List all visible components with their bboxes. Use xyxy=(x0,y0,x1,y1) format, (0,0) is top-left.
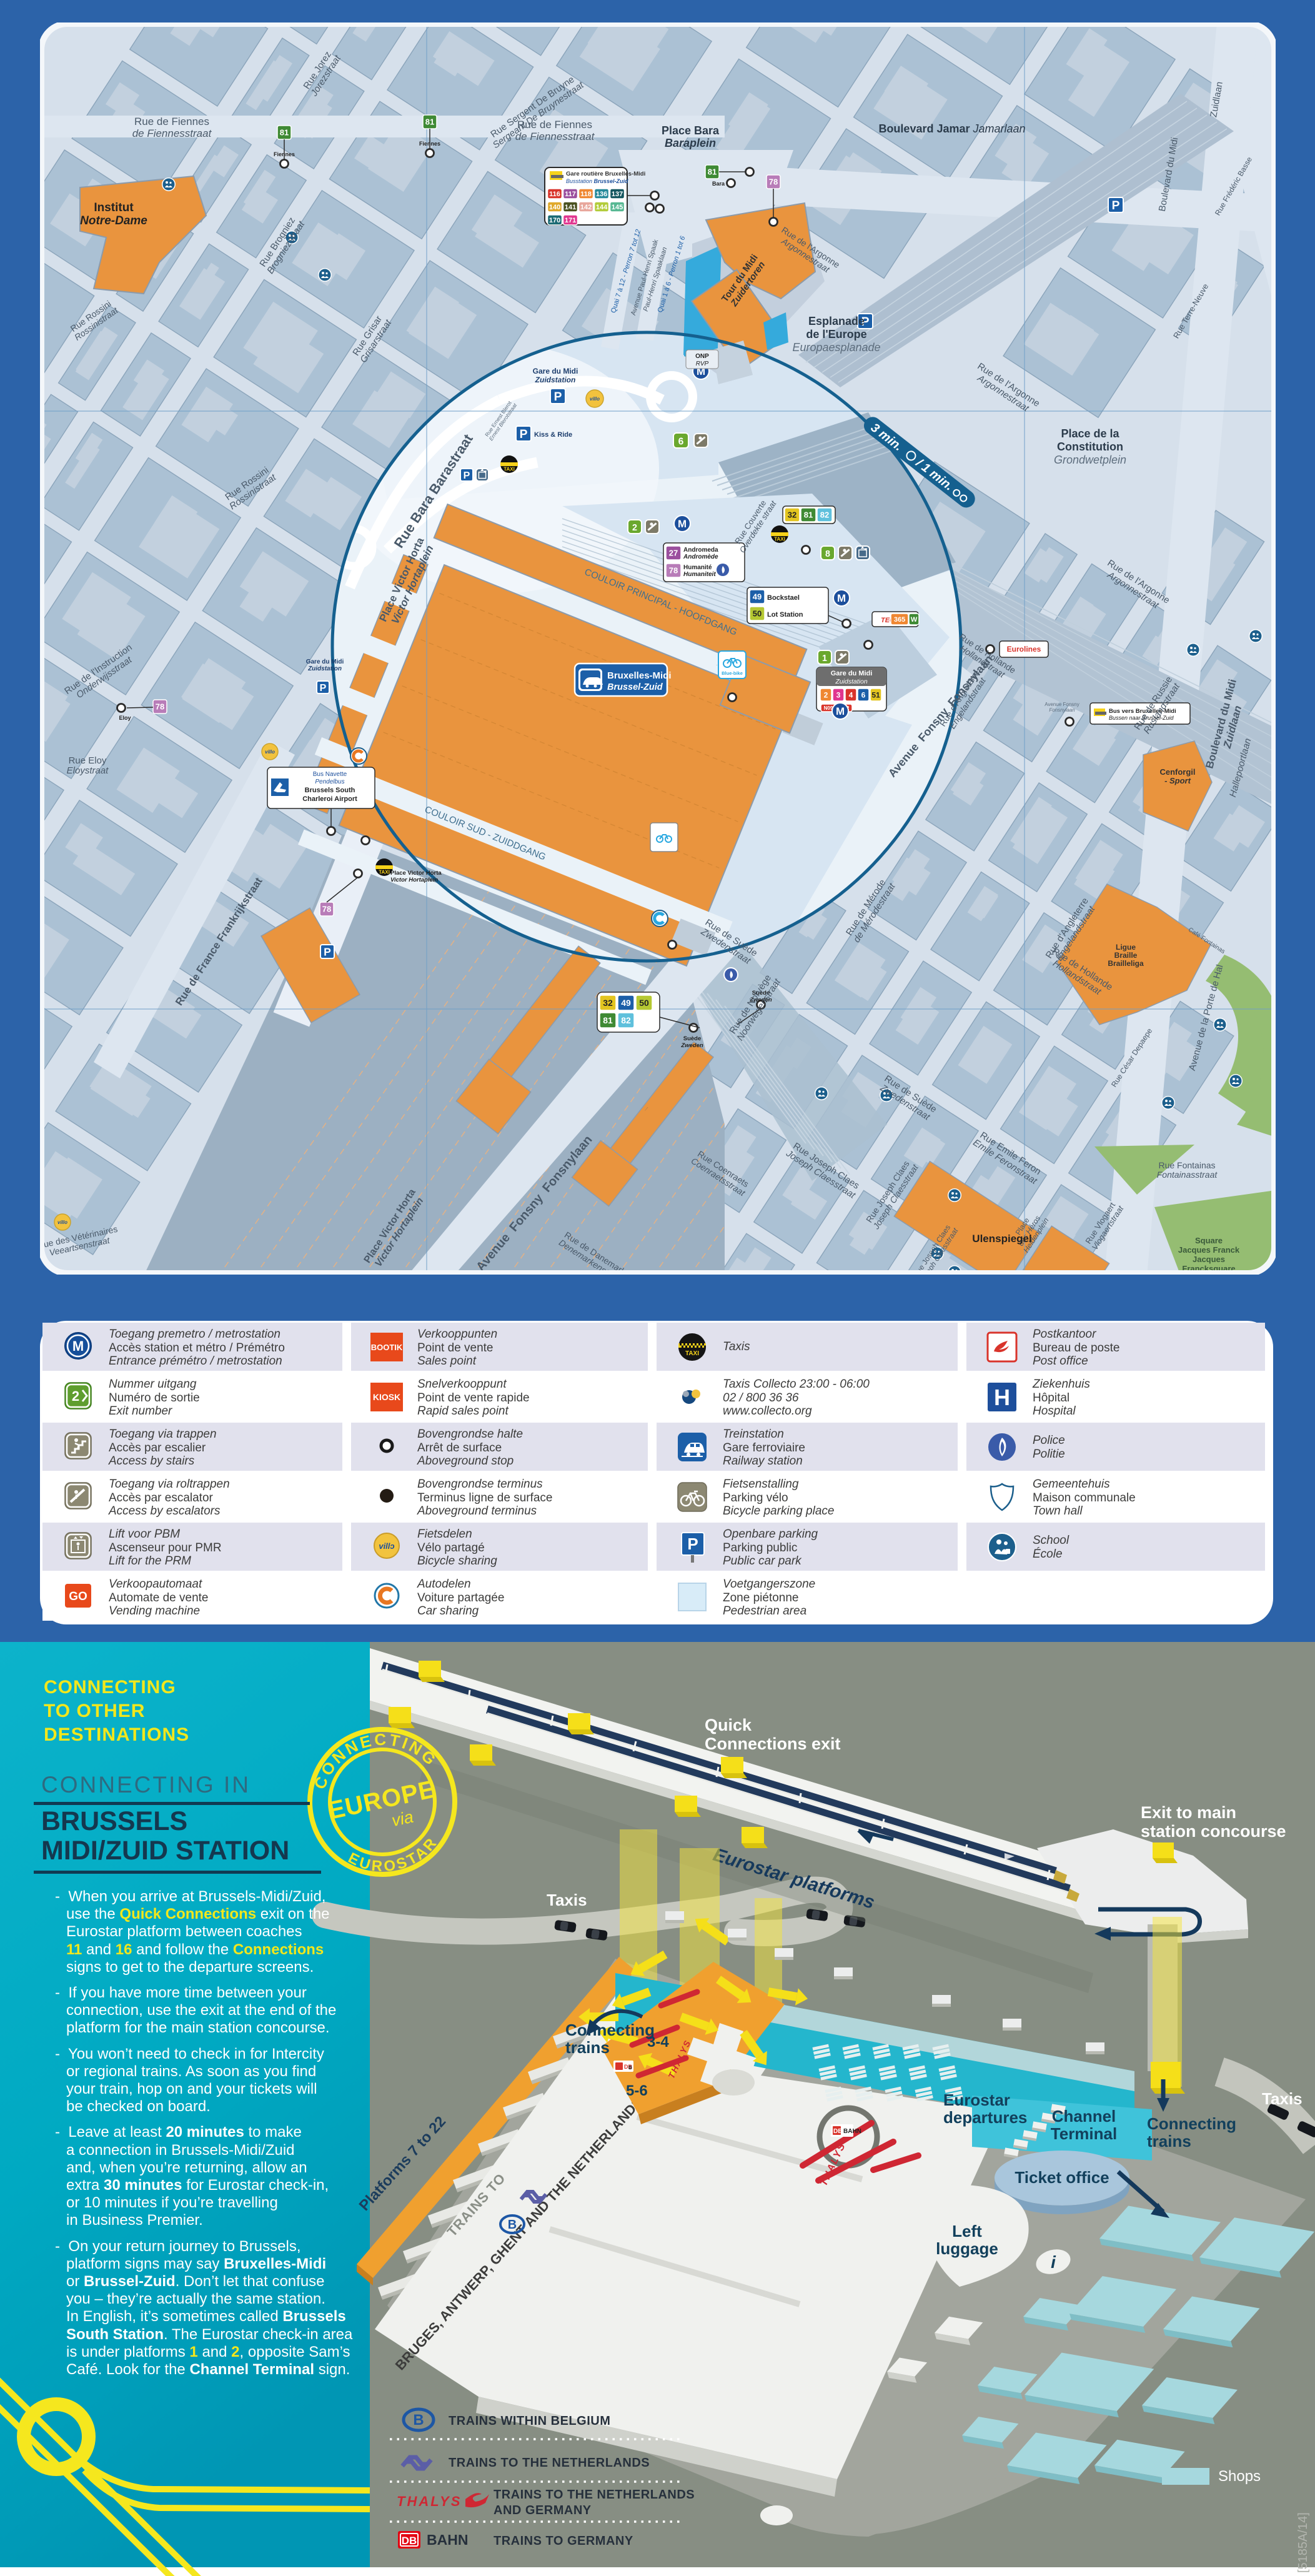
svg-text:Rue EloyEloystraat: Rue EloyEloystraat xyxy=(67,755,109,776)
svg-text:4: 4 xyxy=(849,690,853,699)
svg-text:trains: trains xyxy=(1147,2132,1191,2151)
svg-text:i: i xyxy=(1051,2252,1056,2272)
svg-text:Place Victor HortaVictor Horta: Place Victor HortaVictor Hortaplein xyxy=(390,870,442,883)
svg-text:Brussel-Zuid: Brussel-Zuid xyxy=(607,682,663,692)
svg-text:Left: Left xyxy=(952,2222,982,2240)
svg-text:Taxis: Taxis xyxy=(1262,2089,1303,2108)
svg-text:81: 81 xyxy=(425,117,434,127)
svg-text:KIOSK: KIOSK xyxy=(373,1392,400,1402)
svg-text:82: 82 xyxy=(820,510,829,520)
svg-text:B: B xyxy=(628,2065,632,2071)
svg-text:27: 27 xyxy=(669,549,678,558)
svg-text:Gare routière Bruxelles-Midi: Gare routière Bruxelles-Midi xyxy=(566,171,645,177)
svg-text:Gare du MidiZuidstation: Gare du MidiZuidstation xyxy=(306,659,344,672)
svg-text:137: 137 xyxy=(612,191,623,198)
svg-text:78: 78 xyxy=(156,702,164,712)
svg-text:SuèdeZweden: SuèdeZweden xyxy=(680,1035,703,1049)
svg-text:M: M xyxy=(678,518,687,530)
svg-text:50: 50 xyxy=(639,998,649,1008)
svg-text:117: 117 xyxy=(565,191,576,198)
svg-text:Eloy: Eloy xyxy=(119,715,131,721)
svg-text:81: 81 xyxy=(603,1015,613,1025)
svg-text:station concourse: station concourse xyxy=(1141,1822,1286,1841)
svg-text:H: H xyxy=(994,1385,1010,1410)
svg-text:Europaesplanade: Europaesplanade xyxy=(792,341,880,354)
svg-text:78: 78 xyxy=(769,177,778,187)
svg-text:villɔ: villɔ xyxy=(379,1541,394,1551)
svg-text:DB: DB xyxy=(402,2535,417,2547)
svg-text:118: 118 xyxy=(580,191,592,198)
svg-text:171: 171 xyxy=(565,217,576,224)
svg-text:Avenue FonsnyFonsnylaan: Avenue FonsnyFonsnylaan xyxy=(1045,702,1079,713)
svg-text:81: 81 xyxy=(804,510,813,520)
svg-text:Gare du MidiZuidstation: Gare du MidiZuidstation xyxy=(533,367,578,384)
svg-text:B: B xyxy=(413,2412,424,2429)
svg-text:3: 3 xyxy=(836,690,841,699)
svg-text:Blue-bike: Blue-bike xyxy=(722,670,743,676)
svg-text:TAXI: TAXI xyxy=(685,1350,699,1357)
svg-text:Ticket office: Ticket office xyxy=(1015,2168,1109,2187)
svg-text:Rue FontainasFontainasstraat: Rue FontainasFontainasstraat xyxy=(1157,1160,1218,1180)
svg-text:32: 32 xyxy=(788,510,796,520)
svg-text:5-6: 5-6 xyxy=(626,2082,648,2099)
svg-text:W: W xyxy=(911,616,918,624)
svg-text:365: 365 xyxy=(894,616,905,624)
svg-text:M: M xyxy=(836,705,845,717)
svg-text:[5185A/14]: [5185A/14] xyxy=(1296,2512,1310,2573)
svg-text:51: 51 xyxy=(871,690,880,699)
svg-text:Place BaraBaraplein: Place BaraBaraplein xyxy=(662,124,720,149)
svg-text:AndromedaAndromède: AndromedaAndromède xyxy=(683,547,718,560)
svg-text:Cenforgil- Sport: Cenforgil- Sport xyxy=(1159,767,1195,785)
svg-text:GO: GO xyxy=(69,1590,87,1603)
svg-text:Boulevard Jamar Jamarlaan: Boulevard Jamar Jamarlaan xyxy=(878,122,1025,135)
svg-text:BOOTIK: BOOTIK xyxy=(371,1343,403,1352)
svg-text:HumanitéHumaniteit: HumanitéHumaniteit xyxy=(683,564,716,578)
svg-text:Quick: Quick xyxy=(705,1716,752,1734)
svg-text:142: 142 xyxy=(580,204,592,211)
svg-text:2: 2 xyxy=(824,690,828,699)
svg-text:2: 2 xyxy=(632,523,637,533)
svg-text:Zuidstation: Zuidstation xyxy=(835,678,868,685)
svg-text:6: 6 xyxy=(678,436,684,447)
svg-text:116: 116 xyxy=(549,191,560,198)
svg-text:Connecting: Connecting xyxy=(565,2021,655,2039)
svg-text:Gare du Midi: Gare du Midi xyxy=(831,670,873,677)
svg-text:Taxis: Taxis xyxy=(547,1891,587,1909)
svg-text:luggage: luggage xyxy=(936,2239,998,2258)
svg-text:TRAINS TO THE NETHERLANDS: TRAINS TO THE NETHERLANDS xyxy=(494,2488,695,2502)
svg-text:ONP: ONP xyxy=(695,353,709,360)
svg-text:Channel: Channel xyxy=(1052,2107,1116,2126)
svg-text:Lot Station: Lot Station xyxy=(767,611,803,619)
svg-text:RVP: RVP xyxy=(696,361,709,367)
svg-text:6: 6 xyxy=(861,690,866,699)
svg-text:B: B xyxy=(508,2218,517,2232)
svg-text:TAXI: TAXI xyxy=(504,467,515,472)
svg-text:trains: trains xyxy=(565,2038,610,2057)
svg-text:Connections exit: Connections exit xyxy=(705,1734,841,1753)
svg-text:Grondwetplein: Grondwetplein xyxy=(1054,454,1126,466)
svg-text:M: M xyxy=(837,592,846,604)
svg-text:82: 82 xyxy=(621,1015,631,1025)
svg-text:villo: villo xyxy=(590,396,600,402)
svg-text:136: 136 xyxy=(596,191,607,198)
svg-text:Exit to main: Exit to main xyxy=(1141,1803,1236,1822)
svg-text:50: 50 xyxy=(753,609,762,619)
svg-text:THALYS: THALYS xyxy=(397,2494,462,2509)
svg-text:M: M xyxy=(72,1338,84,1354)
svg-text:78: 78 xyxy=(322,905,331,914)
svg-text:Esplanadede l'Europe: Esplanadede l'Europe xyxy=(806,315,866,341)
svg-text:ligne 2: ligne 2 xyxy=(717,665,718,666)
svg-text:TRAINS TO THE NETHERLANDS: TRAINS TO THE NETHERLANDS xyxy=(449,2456,650,2470)
svg-text:P: P xyxy=(520,428,528,441)
svg-text:villo: villo xyxy=(57,1220,67,1225)
svg-text:Rue de Fiennesde Fiennesstraat: Rue de Fiennesde Fiennesstraat xyxy=(132,116,212,139)
svg-text:Connecting: Connecting xyxy=(1147,2114,1236,2133)
svg-text:2: 2 xyxy=(72,1388,79,1404)
svg-text:DB: DB xyxy=(833,2128,842,2135)
svg-text:145: 145 xyxy=(612,204,623,211)
svg-text:81: 81 xyxy=(280,128,289,137)
svg-text:Charleroi Airport: Charleroi Airport xyxy=(302,795,357,803)
svg-text:P: P xyxy=(1112,199,1120,212)
svg-text:Fiennes: Fiennes xyxy=(419,141,440,147)
svg-text:AND GERMANY: AND GERMANY xyxy=(494,2504,592,2517)
svg-text:49: 49 xyxy=(753,592,762,602)
svg-text:49: 49 xyxy=(621,998,631,1008)
svg-text:32: 32 xyxy=(603,998,613,1008)
svg-text:8: 8 xyxy=(825,549,830,559)
svg-text:81: 81 xyxy=(708,167,717,177)
svg-text:1: 1 xyxy=(822,654,827,664)
svg-text:Bruxelles-Midi: Bruxelles-Midi xyxy=(607,670,672,681)
svg-text:P: P xyxy=(554,390,562,404)
svg-text:Brussels South: Brussels South xyxy=(305,787,355,794)
svg-text:Bus Navette: Bus Navette xyxy=(313,771,347,778)
svg-text:Eurostar: Eurostar xyxy=(943,2091,1010,2109)
svg-text:Ulenspiegel: Ulenspiegel xyxy=(972,1233,1031,1245)
svg-text:Place de laConstitution: Place de laConstitution xyxy=(1057,427,1123,453)
svg-text:144: 144 xyxy=(596,204,608,211)
svg-text:Fiennes: Fiennes xyxy=(274,151,295,157)
svg-text:departures: departures xyxy=(943,2108,1027,2127)
svg-text:Bara: Bara xyxy=(712,181,725,187)
svg-text:P: P xyxy=(687,1534,698,1553)
svg-text:140: 140 xyxy=(549,204,560,211)
svg-text:Busstation Brussel-Zuid: Busstation Brussel-Zuid xyxy=(566,178,628,184)
svg-text:78: 78 xyxy=(669,566,678,575)
svg-text:TRAINS TO GERMANY: TRAINS TO GERMANY xyxy=(494,2534,633,2548)
svg-text:Eurolines: Eurolines xyxy=(1007,645,1041,654)
svg-text:villo: villo xyxy=(265,749,275,755)
svg-text:Bockstael: Bockstael xyxy=(767,594,800,602)
svg-text:TAXI: TAXI xyxy=(379,870,390,875)
svg-text:170: 170 xyxy=(549,217,560,224)
svg-text:P: P xyxy=(324,946,331,958)
svg-text:BAHN: BAHN xyxy=(427,2532,468,2548)
svg-text:P: P xyxy=(464,470,470,481)
svg-text:Pendelbus: Pendelbus xyxy=(315,778,344,785)
svg-text:Kiss & Ride: Kiss & Ride xyxy=(534,431,572,439)
svg-text:141: 141 xyxy=(565,204,576,211)
svg-text:Shops: Shops xyxy=(1218,2468,1261,2485)
svg-text:BAHN: BAHN xyxy=(843,2128,861,2135)
svg-text:Terminal: Terminal xyxy=(1051,2124,1117,2143)
svg-text:TRAINS WITHIN BELGIUM: TRAINS WITHIN BELGIUM xyxy=(449,2414,610,2428)
svg-text:P: P xyxy=(320,683,327,694)
svg-text:TAXI: TAXI xyxy=(774,537,785,542)
